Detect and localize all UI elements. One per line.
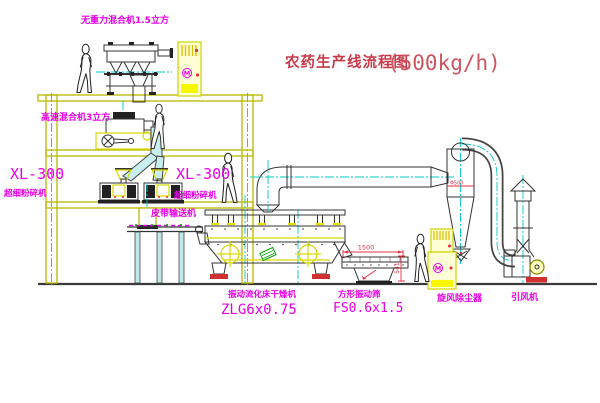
base-arrow [363,270,376,279]
foot-pad [312,274,330,279]
mixer-hopper [124,62,136,73]
motor-symbol: M [435,265,441,273]
duct-inner-wall [279,187,431,205]
cabinet-band [181,84,198,93]
indicator-dot [166,196,168,198]
fan-motor [530,260,544,274]
motor-cross [104,137,112,145]
mixer-discharge-funnel [130,75,148,86]
mixer-hopper [110,62,122,73]
cyclone-diameter-dim: Φ500 [450,181,463,187]
screen-length-dim: 1500 [358,244,375,252]
label-cyclone: 旋风除尘器 [436,292,483,304]
indicator-dot [460,252,462,254]
conveyor-leg [179,232,184,283]
dryer-deck [205,210,345,215]
fan-base-pad [526,277,547,283]
mixer-tab [129,42,134,45]
spring-mount [229,215,234,224]
indicator-dot [158,196,160,198]
spring-mount [335,215,340,224]
trough-rivets [211,228,341,245]
label-screen-model: FS0.6x1.5 [333,301,403,316]
label-belt-conveyor: 皮带输送机 [150,207,196,219]
control-cabinet-top: M [178,42,201,96]
diagram-svg: M [0,0,600,403]
foot-pad [210,274,228,279]
tray-hatch [350,257,400,262]
duct-outer-wall [257,167,431,205]
label-mill-center-name: 超细粉碎机 [173,190,217,201]
indicator-dot [122,196,124,198]
conveyor-leg [157,232,162,283]
indicator-light [448,245,451,248]
dryer-foot [212,263,226,274]
spring-mounts [211,215,341,224]
material-dot [151,224,153,226]
belt-conveyor [127,224,209,283]
cyclone-outlet-pipe [462,144,515,261]
mixer-top-plate [104,45,158,51]
dryer-trough [205,226,345,242]
label-mill-left-name: 超细粉碎机 [3,188,47,199]
cabinet-band [431,280,453,287]
dryer-foot [314,263,328,274]
screen-base [354,268,394,281]
screen-bottom-plate [356,281,392,284]
label-fan: 引风机 [511,291,538,303]
mixer-hopper [138,62,150,73]
worker-figure-top [77,44,91,92]
green-tag [260,247,276,260]
label-dryer-name: 振动流化床干燥机 [228,289,297,300]
label-high-speed-mixer: 高速混合机3立方 [41,111,110,123]
indicator-light [450,267,453,270]
mixer-vessel [106,119,144,133]
mill-panel [113,185,125,196]
pipe-wall [462,144,515,261]
mill-base [98,200,140,204]
dim-arrow [398,251,403,254]
material-dot [180,224,182,226]
label-dryer-model: ZLG6x0.75 [221,302,297,318]
indicator-dot [114,196,116,198]
drive-box [96,133,153,149]
screen-height-dim: 541 [394,262,401,274]
indicator-light [195,49,198,52]
gravity-free-mixer [96,42,173,102]
screen-tray-upper [342,257,408,262]
material-dot [135,224,137,226]
cad-flow-diagram: M [0,0,600,403]
mixer-tab [108,42,113,45]
indicator-light [196,73,199,76]
spring-mount [213,215,218,224]
mixer-foot [107,92,114,95]
mill-block [127,185,136,198]
high-speed-mixer [96,101,153,149]
exhaust-duct [250,160,455,212]
motor-symbol: M [184,70,190,78]
mill-block [102,185,111,198]
worker-figure-ground [415,234,429,281]
material-dot [166,224,168,226]
spring-mount [260,215,265,224]
label-mill-center-model: XL-300 [176,165,230,183]
slab-top [38,95,262,101]
label-mill-left-model: XL-300 [10,165,64,183]
dim-arrow [343,251,348,254]
belt-lines [114,139,129,143]
mill-panel [157,185,169,196]
mixer-body [107,51,155,62]
bearing-block [154,72,157,76]
bearing-block [119,72,122,76]
conveyor-leg [135,232,140,283]
control-cabinet-bottom: M [428,229,456,289]
mixer-lid [113,112,135,119]
mixer-foot [149,92,156,95]
pulley-icon [129,139,134,144]
spout-cap [170,48,173,58]
mixer-down-pipe [133,86,145,102]
spring-mount [318,215,323,224]
mixer-tab [149,42,154,45]
label-top-mixer: 无重力混合机1.5立方 [80,14,169,26]
spring-mount [290,215,295,224]
mixer-side-spout [158,50,170,56]
page-title-capacity: (500kg/h) [387,51,501,75]
label-screen-name: 方形振动筛 [338,289,381,300]
